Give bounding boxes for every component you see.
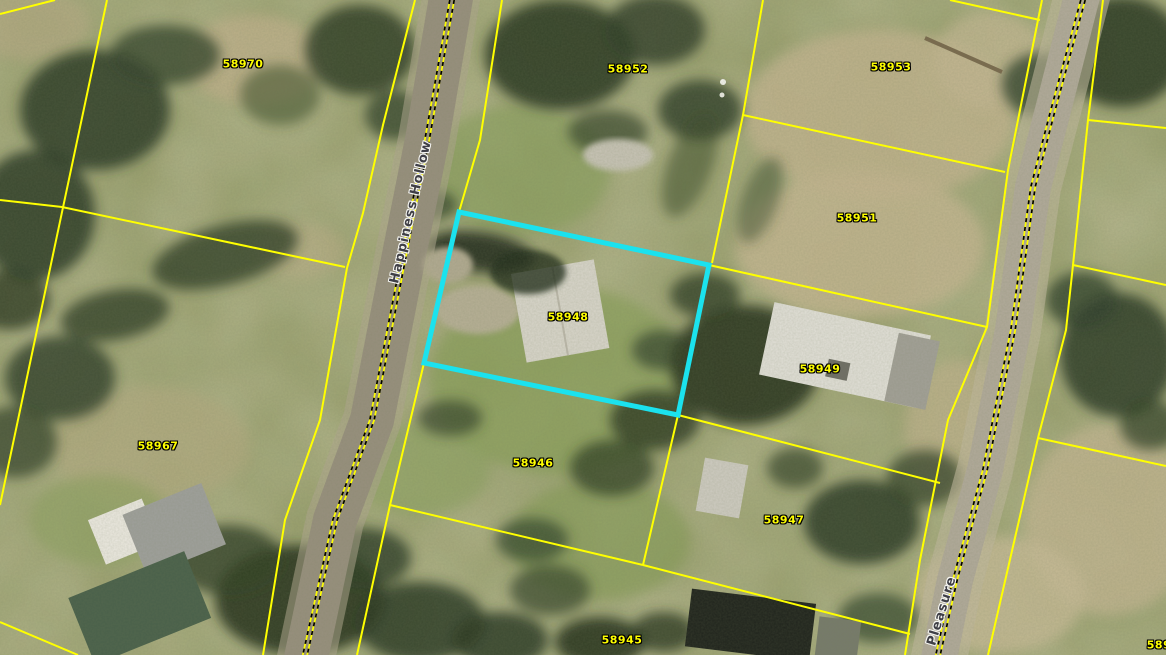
terrain-grain: [0, 0, 1166, 655]
map-canvas-svg: [0, 0, 1166, 655]
map-viewport[interactable]: 5897058952589535895158948589495896758946…: [0, 0, 1166, 655]
